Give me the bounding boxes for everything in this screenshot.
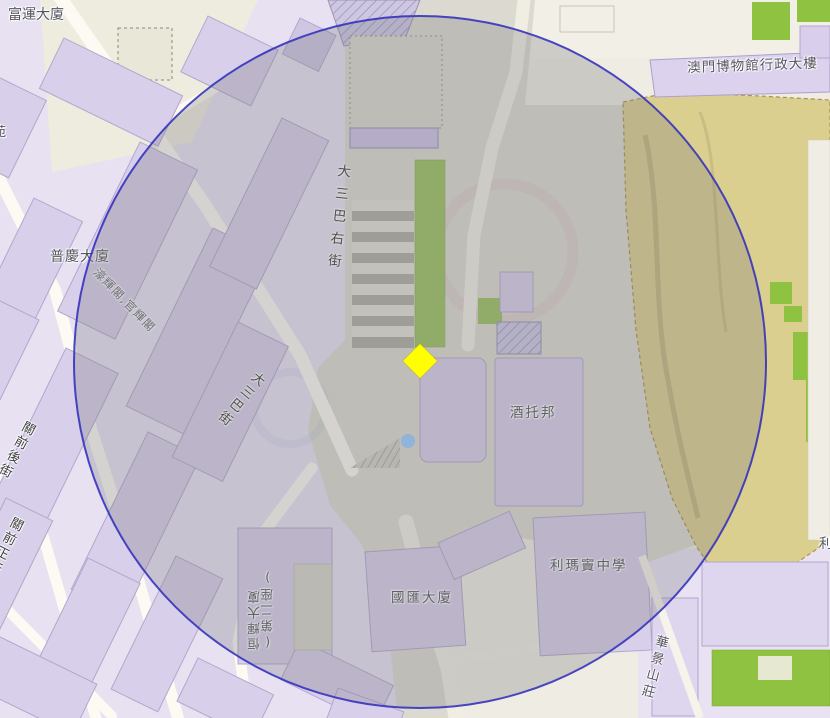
courtyard [350, 36, 442, 128]
grand-stairway [352, 200, 414, 348]
poi-dot-marker [401, 434, 415, 448]
building-museum-admin [650, 52, 830, 97]
facade-ruins [350, 128, 438, 148]
green-area [430, 298, 445, 346]
green-area [752, 2, 790, 40]
landuse-cream-rightedge [808, 140, 830, 540]
courtyard [294, 564, 332, 650]
green-area [478, 298, 502, 324]
map-canvas[interactable]: 富運大廈 澳門博物館行政大樓 普慶大廈 濠輝閣,官輝閣 大三巴右街 大三巴街 關… [0, 0, 830, 718]
green-area [797, 0, 830, 22]
building [758, 656, 792, 680]
building [800, 26, 830, 58]
hatched-site [497, 322, 541, 354]
green-area [770, 282, 792, 304]
green-area [784, 306, 802, 322]
